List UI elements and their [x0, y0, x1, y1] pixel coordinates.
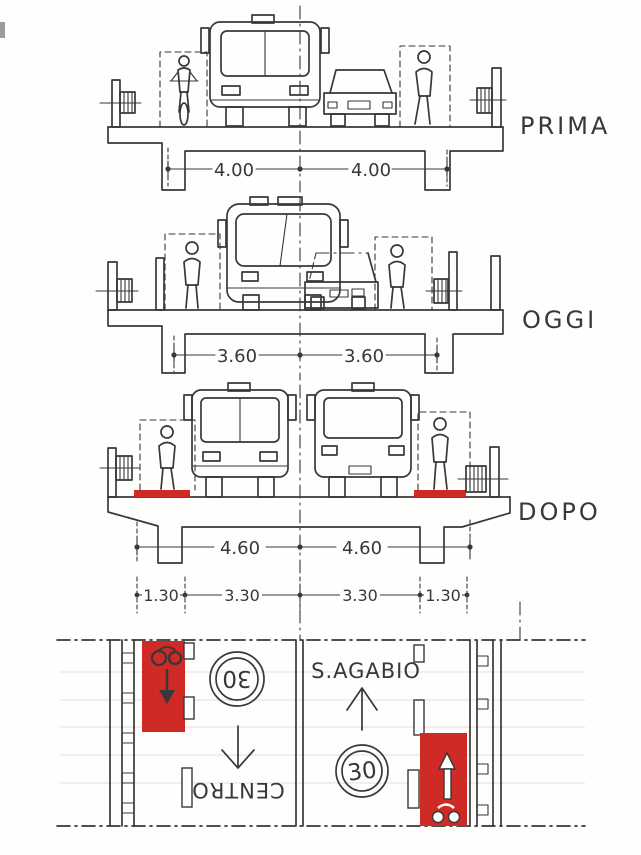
bridge-deck [108, 127, 503, 190]
left-parapet [96, 258, 164, 310]
dimension-label: 4.60 [220, 538, 260, 559]
bridge-deck [108, 310, 503, 373]
destination-label-sagabio: S.AGABIO [311, 659, 421, 683]
pedestrian-icon [400, 46, 450, 127]
right-parapet [426, 252, 500, 310]
center-divider [296, 640, 303, 826]
bike-lane-strip-left [134, 490, 190, 497]
section-title-dopo: DOPO [518, 498, 601, 526]
pedestrian-icon [140, 420, 195, 490]
plan-view: 30 CENTRO S.AGABIO 30 [57, 602, 585, 826]
left-parapet [100, 448, 140, 497]
bridge-deck [108, 497, 510, 563]
bike-lane-right [420, 733, 467, 826]
left-parapet [100, 80, 141, 127]
speed-limit-label: 30 [222, 665, 251, 691]
direction-arrow-down [222, 726, 254, 768]
bus-icon [307, 383, 419, 497]
section-title-oggi: OGGI [522, 306, 597, 334]
right-railing [458, 447, 508, 497]
scan-ruling [60, 672, 585, 783]
speed-limit-label: 30 [346, 757, 378, 786]
bus-icon [184, 383, 296, 497]
speed-limit-sign: 30 [210, 652, 264, 706]
scanned-sketch-page: 4.00 4.00 PRIMA [0, 0, 641, 855]
section-prima: 4.00 4.00 PRIMA [100, 6, 610, 192]
bus-icon [201, 15, 329, 126]
section-dopo: 4.60 4.60 1.30 3.30 3.30 1.30 DOPO [100, 383, 601, 640]
scan-artifact [0, 22, 5, 38]
dimension-label: 1.30 [143, 586, 179, 605]
dimension-row: 3.60 3.60 [171, 336, 439, 372]
dimension-label: 4.00 [214, 160, 254, 181]
dimension-row: 4.00 4.00 [165, 148, 449, 186]
pedestrian-icon [165, 234, 220, 310]
section-title-prima: PRIMA [520, 112, 610, 140]
left-sidewalk [110, 640, 134, 826]
bike-lane-left [142, 641, 185, 732]
dimension-label: 3.60 [344, 346, 384, 367]
destination-label-centro: CENTRO [191, 778, 285, 802]
right-parapet [470, 68, 506, 127]
bike-lane-strip-right [414, 490, 466, 497]
direction-arrow-up [347, 688, 377, 730]
dimension-label: 3.30 [342, 586, 378, 605]
dimension-label: 1.30 [425, 586, 461, 605]
pedestrian-icon [418, 412, 470, 490]
right-sidewalk [470, 640, 501, 826]
dimension-label: 4.00 [351, 160, 391, 181]
cyclist-icon [160, 52, 207, 127]
pedestrian-icon [375, 237, 432, 310]
dimension-label: 3.60 [217, 346, 257, 367]
street-sections-sketch: 4.00 4.00 PRIMA [0, 0, 641, 855]
section-oggi: 3.60 3.60 OGGI [96, 197, 597, 380]
car-icon [324, 70, 396, 126]
speed-limit-sign: 30 [336, 745, 388, 797]
dimension-label: 4.60 [342, 538, 382, 559]
sub-dimension-row: 1.30 3.30 3.30 1.30 [135, 577, 470, 613]
dimension-label: 3.30 [224, 586, 260, 605]
